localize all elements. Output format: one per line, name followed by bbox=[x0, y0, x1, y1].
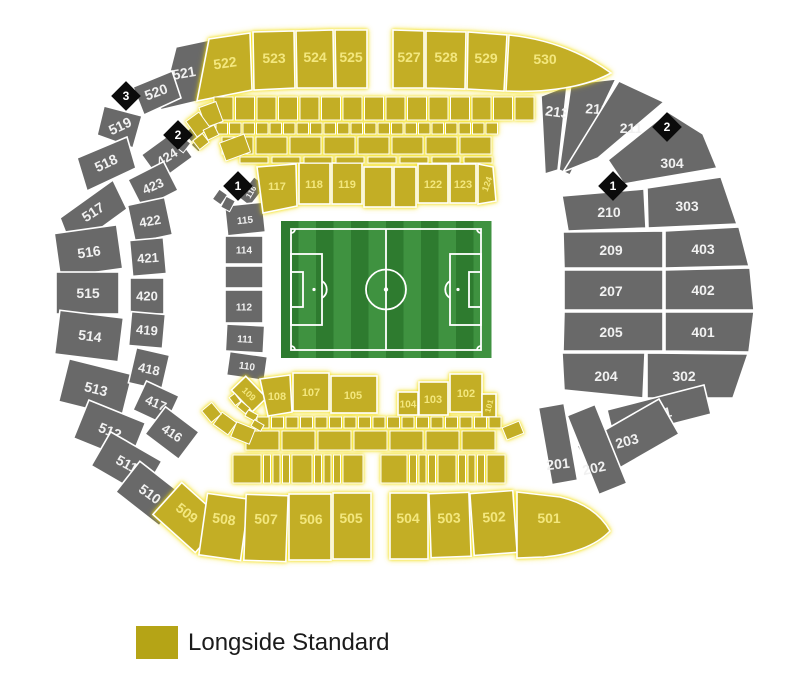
section-122[interactable]: 122 bbox=[418, 164, 448, 203]
section-112: 112 bbox=[225, 290, 263, 323]
seat-block bbox=[304, 157, 332, 163]
seat-block bbox=[459, 455, 466, 483]
seat-block bbox=[515, 97, 534, 120]
seat-block bbox=[240, 157, 268, 163]
section-label: 102 bbox=[457, 388, 475, 400]
section-117[interactable]: 117 bbox=[257, 164, 297, 213]
section-label: 112 bbox=[236, 303, 253, 314]
section-label: 403 bbox=[691, 241, 715, 257]
section-505[interactable]: 505 bbox=[333, 493, 371, 559]
seat-block bbox=[462, 431, 495, 450]
seat-block bbox=[459, 123, 471, 134]
seat-block bbox=[284, 123, 296, 134]
seat-block bbox=[392, 123, 404, 134]
section-401: 401 bbox=[665, 312, 754, 352]
section-124[interactable]: 124 bbox=[478, 164, 496, 204]
seat-block bbox=[381, 455, 407, 483]
section-label: 211 bbox=[620, 120, 643, 136]
section-label: 119 bbox=[338, 179, 356, 191]
section-label: 515 bbox=[76, 285, 100, 301]
seat-block bbox=[282, 431, 315, 450]
seat-block bbox=[324, 123, 336, 134]
marker-label: 2 bbox=[175, 128, 182, 142]
section-label: 523 bbox=[262, 50, 286, 66]
seat-block bbox=[318, 431, 351, 450]
seat-block bbox=[388, 417, 400, 428]
section-label: 514 bbox=[77, 327, 102, 346]
section-label: 508 bbox=[211, 509, 237, 528]
section-label: 516 bbox=[76, 242, 102, 261]
pitch bbox=[281, 221, 492, 358]
seat-block bbox=[334, 455, 341, 483]
seat-block bbox=[368, 157, 396, 163]
section-110: 110 bbox=[227, 351, 268, 380]
seat-block bbox=[324, 137, 355, 154]
seat-block bbox=[300, 97, 319, 120]
seat-block bbox=[311, 123, 323, 134]
section-label: 506 bbox=[299, 511, 323, 527]
section-label: 528 bbox=[434, 49, 458, 65]
section-514: 514 bbox=[55, 310, 124, 361]
marker-label: 2 bbox=[664, 120, 671, 134]
section-label: 504 bbox=[396, 510, 420, 526]
section-label: 501 bbox=[537, 510, 561, 526]
seat-block bbox=[417, 417, 429, 428]
seat-block bbox=[344, 417, 356, 428]
section-unlabeled[interactable] bbox=[364, 167, 392, 207]
seat-block bbox=[286, 417, 298, 428]
section-label: 530 bbox=[533, 51, 557, 67]
section-label: 123 bbox=[454, 179, 472, 191]
section-label: 304 bbox=[660, 155, 684, 171]
seat-block bbox=[402, 417, 414, 428]
section-label: 529 bbox=[474, 50, 498, 66]
section-515: 515 bbox=[56, 272, 119, 314]
section-502[interactable]: 502 bbox=[470, 491, 517, 556]
section-label: 401 bbox=[691, 324, 715, 340]
section-label: 117 bbox=[268, 181, 286, 193]
section-205: 205 bbox=[563, 312, 663, 351]
section-103[interactable]: 103 bbox=[419, 382, 448, 415]
seatmap-page: 5215205195185175165155145135125115104244… bbox=[0, 0, 797, 695]
seat-block bbox=[330, 417, 342, 428]
seat-block bbox=[343, 455, 363, 483]
section-label: 507 bbox=[254, 510, 278, 527]
section-label: 210 bbox=[597, 204, 621, 220]
seat-block bbox=[272, 417, 284, 428]
section-label: 108 bbox=[268, 391, 286, 403]
legend-label: Longside Standard bbox=[188, 629, 390, 657]
marker-label: 1 bbox=[610, 179, 617, 193]
seat-block bbox=[400, 157, 428, 163]
seat-block bbox=[315, 455, 322, 483]
section-114: 114 bbox=[225, 236, 263, 264]
section-label: 524 bbox=[303, 49, 327, 65]
seat-block bbox=[301, 417, 313, 428]
seat-block bbox=[322, 97, 341, 120]
marker-label: 3 bbox=[123, 89, 130, 103]
seat-block bbox=[431, 417, 443, 428]
seat-block bbox=[233, 455, 261, 483]
section-label: 201 bbox=[546, 455, 571, 473]
seat-block bbox=[429, 97, 448, 120]
section-101[interactable]: 101 bbox=[482, 394, 496, 417]
seat-block bbox=[486, 123, 498, 134]
section-506[interactable]: 506 bbox=[289, 494, 331, 560]
seat-block bbox=[429, 455, 436, 483]
section-unlabeled[interactable] bbox=[394, 167, 416, 207]
section-108[interactable]: 108 bbox=[260, 375, 292, 416]
seat-block bbox=[419, 455, 426, 483]
section-403: 403 bbox=[665, 227, 749, 268]
seat-block bbox=[472, 97, 491, 120]
section-105[interactable]: 105 bbox=[331, 376, 377, 413]
section-422: 422 bbox=[127, 197, 172, 242]
section-525[interactable]: 525 bbox=[335, 30, 367, 88]
seat-block bbox=[270, 123, 282, 134]
seat-block bbox=[279, 97, 298, 120]
section-label: 209 bbox=[599, 242, 623, 258]
seat-block bbox=[408, 97, 427, 120]
section-label: 110 bbox=[238, 360, 256, 373]
section-label: 302 bbox=[672, 368, 696, 384]
seat-block bbox=[426, 137, 457, 154]
section-label: 115 bbox=[237, 215, 254, 227]
seat-block bbox=[257, 97, 276, 120]
section-518: 518 bbox=[77, 137, 136, 191]
section-label: 402 bbox=[691, 282, 715, 298]
seat-block bbox=[468, 455, 475, 483]
section-label: 525 bbox=[339, 49, 363, 65]
stadium-map: 5215205195185175165155145135125115104244… bbox=[0, 0, 797, 590]
section-421: 421 bbox=[129, 238, 166, 277]
seat-block bbox=[405, 123, 417, 134]
seat-block bbox=[315, 417, 327, 428]
section-label: 527 bbox=[397, 49, 421, 65]
section-unlabeled bbox=[225, 266, 263, 288]
section-516: 516 bbox=[54, 225, 123, 277]
seat-block bbox=[292, 455, 312, 483]
section-102[interactable]: 102 bbox=[450, 374, 482, 412]
seat-block bbox=[489, 417, 501, 428]
section-508[interactable]: 508 bbox=[199, 493, 249, 560]
section-523[interactable]: 523 bbox=[253, 31, 295, 90]
section-504[interactable]: 504 bbox=[390, 493, 428, 559]
section-207: 207 bbox=[564, 270, 663, 310]
seat-block bbox=[338, 123, 350, 134]
seat-block bbox=[297, 123, 309, 134]
section-label: 503 bbox=[437, 509, 461, 526]
legend-swatch-longside-standard bbox=[136, 626, 178, 659]
seat-block bbox=[460, 417, 472, 428]
seat-block bbox=[358, 137, 389, 154]
section-label: 103 bbox=[424, 394, 442, 406]
section-label: 505 bbox=[339, 510, 363, 526]
seat-block bbox=[432, 157, 460, 163]
section-label: 420 bbox=[136, 289, 158, 304]
section-label: 502 bbox=[482, 508, 506, 525]
seat-block bbox=[256, 137, 287, 154]
seat-block bbox=[359, 417, 371, 428]
seat-block bbox=[392, 137, 423, 154]
section-label: 118 bbox=[305, 179, 323, 191]
seat-block bbox=[473, 123, 485, 134]
seat-block bbox=[230, 123, 242, 134]
section-label: 421 bbox=[137, 250, 160, 266]
seat-block bbox=[464, 157, 492, 163]
section-label: 114 bbox=[236, 246, 253, 257]
seat-block bbox=[475, 417, 487, 428]
section-520: 520 bbox=[133, 71, 181, 115]
section-111: 111 bbox=[225, 324, 264, 353]
section-419: 419 bbox=[129, 312, 166, 349]
section-528[interactable]: 528 bbox=[426, 31, 466, 89]
section-524[interactable]: 524 bbox=[296, 30, 334, 88]
section-104[interactable]: 104 bbox=[398, 392, 418, 415]
section-label: 204 bbox=[594, 368, 618, 384]
section-119[interactable]: 119 bbox=[332, 163, 362, 204]
seat-block bbox=[236, 97, 255, 120]
seat-block bbox=[419, 123, 431, 134]
seat-block bbox=[386, 97, 405, 120]
seat-block bbox=[365, 123, 377, 134]
section-210: 210 bbox=[562, 189, 646, 231]
section-503[interactable]: 503 bbox=[429, 492, 471, 557]
legend: Longside Standard bbox=[136, 626, 390, 659]
seat-block bbox=[324, 455, 331, 483]
seat-block bbox=[264, 455, 271, 483]
section-label: 522 bbox=[212, 53, 238, 72]
seat-block bbox=[478, 455, 485, 483]
seat-block bbox=[446, 417, 458, 428]
section-303: 303 bbox=[647, 177, 737, 228]
seat-block bbox=[438, 455, 456, 483]
section-label: 303 bbox=[675, 198, 699, 214]
seat-block bbox=[351, 123, 363, 134]
seat-block bbox=[336, 157, 364, 163]
section-402: 402 bbox=[665, 268, 754, 310]
seat-block bbox=[494, 97, 513, 120]
section-204: 204 bbox=[562, 353, 645, 398]
section-label: 205 bbox=[599, 324, 623, 340]
seat-block bbox=[487, 455, 505, 483]
seat-block bbox=[290, 137, 321, 154]
seat-block bbox=[257, 123, 269, 134]
seat-block bbox=[365, 97, 384, 120]
seat-block bbox=[243, 123, 255, 134]
section-label: 419 bbox=[136, 322, 159, 339]
seat-block bbox=[283, 455, 290, 483]
section-527[interactable]: 527 bbox=[393, 30, 424, 88]
marker-label: 1 bbox=[235, 179, 242, 193]
section-118[interactable]: 118 bbox=[299, 163, 330, 204]
section-label: 107 bbox=[302, 387, 320, 399]
seat-block bbox=[378, 123, 390, 134]
seat-block bbox=[410, 455, 417, 483]
section-107[interactable]: 107 bbox=[293, 373, 329, 411]
seat-block bbox=[451, 97, 470, 120]
section-507[interactable]: 507 bbox=[244, 494, 288, 561]
seat-block bbox=[273, 455, 280, 483]
section-209: 209 bbox=[563, 231, 663, 268]
section-501[interactable]: 501 bbox=[517, 492, 610, 558]
section-420: 420 bbox=[130, 278, 164, 314]
seat-block bbox=[446, 123, 458, 134]
seat-block bbox=[460, 137, 491, 154]
section-label: 111 bbox=[237, 334, 254, 346]
section-label: 122 bbox=[424, 179, 442, 191]
seat-block bbox=[426, 431, 459, 450]
seat-block bbox=[272, 157, 300, 163]
section-123[interactable]: 123 bbox=[450, 164, 476, 203]
section-529[interactable]: 529 bbox=[467, 32, 507, 91]
seat-block bbox=[343, 97, 362, 120]
seat-block bbox=[502, 421, 524, 440]
section-label: 207 bbox=[599, 283, 623, 299]
section-label: 105 bbox=[344, 390, 362, 402]
seat-block bbox=[354, 431, 387, 450]
seat-block bbox=[373, 417, 385, 428]
seat-block bbox=[390, 431, 423, 450]
seat-block bbox=[432, 123, 444, 134]
section-label: 104 bbox=[400, 400, 417, 411]
